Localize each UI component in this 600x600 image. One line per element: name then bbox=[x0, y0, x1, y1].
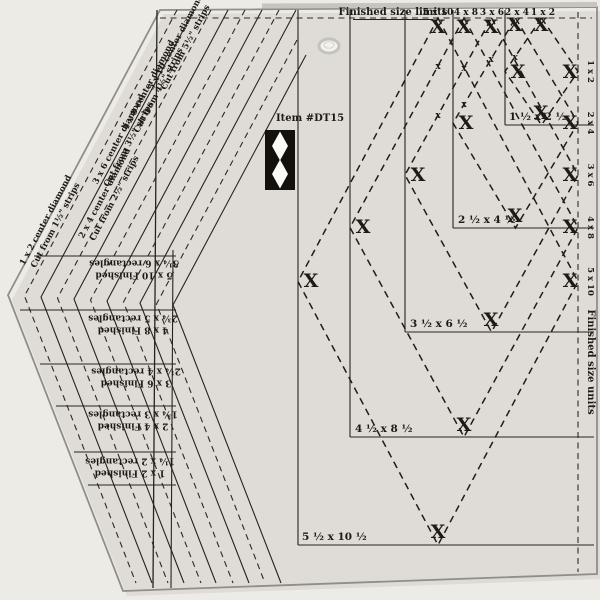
x-mark: X bbox=[304, 270, 319, 292]
rect-label-4.5x8.5: 4 ½ x 8 ½ bbox=[355, 423, 412, 435]
small-x-mark: x bbox=[435, 62, 441, 72]
x-mark: X bbox=[431, 521, 446, 543]
right-size-2x4: 2 x 4 bbox=[585, 112, 595, 135]
top-size-labels: 5 x 10 4 x 8 3 x 6 2 x 4 1 x 2 bbox=[423, 8, 555, 18]
x-mark: X bbox=[563, 164, 578, 186]
quilting-ruler-photo: X X X X X X X X X X X X X X X X X X X X … bbox=[0, 0, 600, 600]
block-finished-text: 3 x 6 Finished bbox=[100, 378, 171, 388]
photo-stage: X X X X X X X X X X X X X X X X X X X X … bbox=[0, 0, 600, 600]
ruler-shadow bbox=[12, 11, 600, 596]
rect-label-2.5x4.5: 2 ½ x 4 ½ bbox=[458, 214, 515, 226]
small-x-mark: x bbox=[435, 111, 441, 121]
block-rect-text: 3¼ x 6 rectangles bbox=[89, 258, 179, 269]
top-size-5x10: 5 x 10 bbox=[423, 8, 453, 18]
block-finished-text: 1 x 2 Finished bbox=[94, 468, 165, 478]
top-size-4x8: 4 x 8 bbox=[454, 8, 478, 18]
x-mark: X bbox=[484, 16, 499, 38]
item-number-label: Item #DT15 bbox=[276, 113, 344, 124]
small-x-mark: x bbox=[461, 64, 467, 74]
small-x-mark: x bbox=[512, 53, 518, 63]
small-x-mark: x bbox=[488, 55, 494, 65]
x-mark: X bbox=[563, 270, 578, 292]
right-size-4x8: 4 x 8 bbox=[585, 216, 595, 239]
x-mark: X bbox=[356, 216, 371, 238]
right-size-1x2: 1 x 2 bbox=[585, 60, 595, 83]
right-size-labels: 1 x 2 2 x 4 3 x 6 4 x 8 5 x 10 Finished … bbox=[585, 60, 596, 415]
x-mark: X bbox=[457, 16, 472, 38]
right-size-5x10: 5 x 10 bbox=[585, 267, 595, 296]
block-finished-text: 2 x 4 Finished bbox=[97, 421, 168, 431]
top-size-2x4: 2 x 4 bbox=[505, 8, 529, 18]
ruler-top-edge bbox=[262, 5, 597, 7]
right-size-3x6: 3 x 6 bbox=[585, 164, 595, 187]
x-mark: X bbox=[459, 112, 474, 134]
block-rect-text: 1¾ x 3 rectangles bbox=[88, 409, 178, 419]
rect-label-5.5x10.5: 5 ½ x 10 ½ bbox=[302, 531, 367, 543]
x-mark: X bbox=[563, 216, 578, 238]
block-finished-text: 4 x 8 Finished bbox=[97, 325, 168, 335]
hang-hole bbox=[319, 39, 339, 53]
x-mark: X bbox=[457, 414, 472, 436]
block-rect-text: 2¾ x 5 rectangles bbox=[88, 313, 178, 323]
small-x-mark: x bbox=[461, 100, 467, 110]
block-finished-text: 5 x 10 Finished bbox=[95, 270, 173, 280]
top-size-3x6: 3 x 6 bbox=[480, 8, 504, 18]
x-mark: X bbox=[511, 61, 526, 83]
rect-label-3.5x6.5: 3 ½ x 6 ½ bbox=[410, 318, 467, 330]
top-size-1x2: 1 x 2 bbox=[531, 8, 555, 18]
block-rect-text: 1¼ x 2 rectangles bbox=[85, 456, 175, 467]
x-mark: X bbox=[431, 16, 446, 38]
block-rect-text: 2¼ x 4 rectangles bbox=[91, 366, 181, 377]
x-mark: X bbox=[411, 164, 426, 186]
rect-label-1.5x2.5: 1 ½ x 2 ½ bbox=[509, 111, 566, 123]
brand-logo bbox=[265, 130, 295, 190]
x-mark: X bbox=[563, 61, 578, 83]
x-mark: X bbox=[484, 309, 499, 331]
finished-size-units-label: Finished size units bbox=[585, 309, 596, 415]
